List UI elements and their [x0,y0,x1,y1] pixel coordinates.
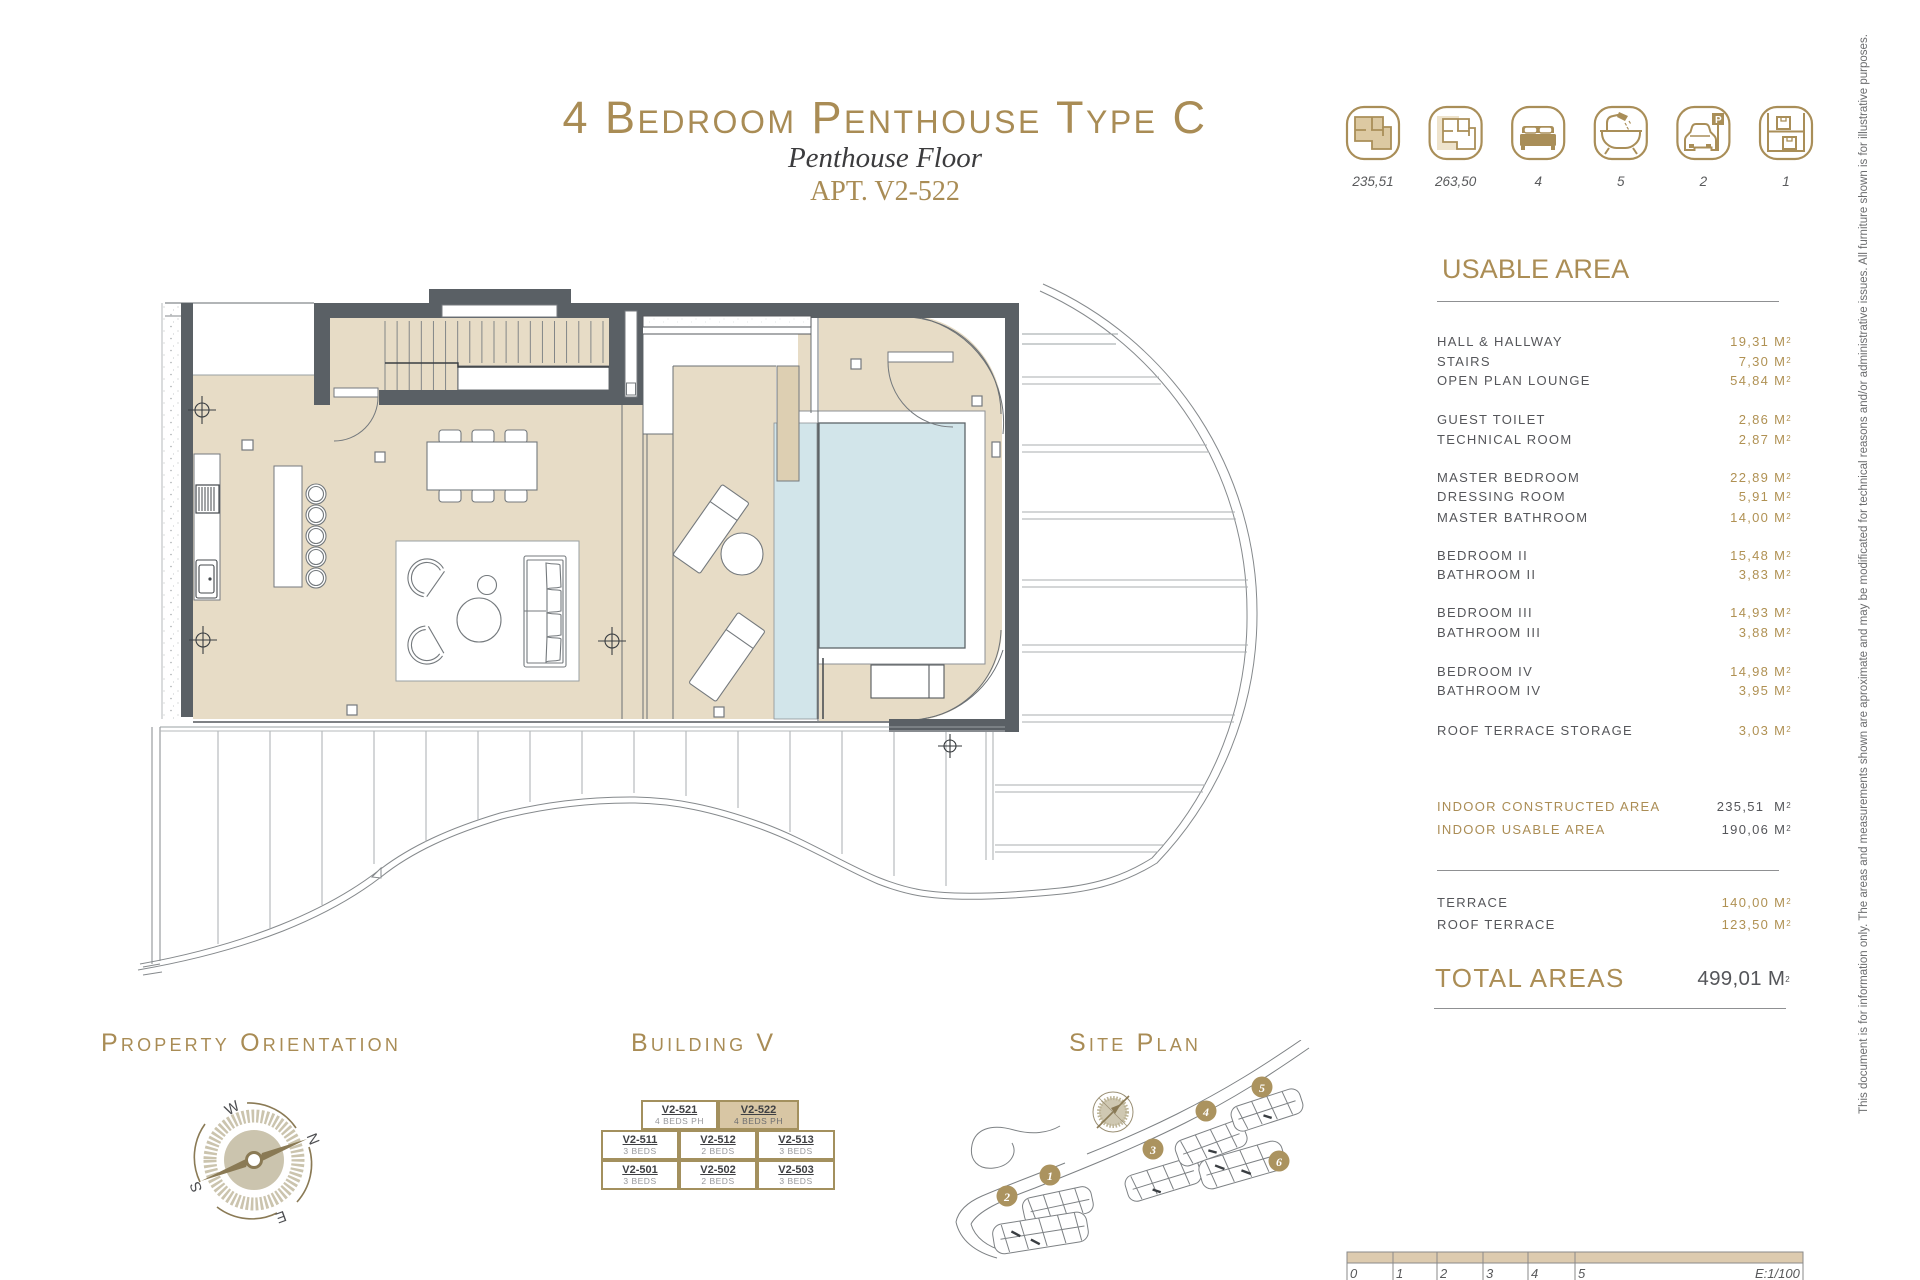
svg-text:0: 0 [1350,1266,1358,1280]
svg-text:S: S [187,1179,206,1194]
svg-text:N: N [303,1131,323,1147]
svg-text:E:1/100: E:1/100 [1755,1266,1801,1280]
svg-text:4: 4 [1202,1105,1209,1119]
svg-text:263,50: 263,50 [1434,174,1477,189]
svg-text:E: E [273,1207,288,1226]
svg-text:3: 3 [1486,1266,1494,1280]
svg-text:1: 1 [1396,1266,1403,1280]
svg-text:1: 1 [1782,174,1790,189]
svg-text:2: 2 [1439,1266,1448,1280]
svg-text:2: 2 [1699,174,1708,189]
svg-text:5: 5 [1259,1081,1265,1095]
svg-text:1: 1 [1047,1169,1053,1183]
svg-text:4: 4 [1531,1266,1538,1280]
svg-text:3: 3 [1149,1143,1156,1157]
svg-text:6: 6 [1276,1155,1282,1169]
svg-text:5: 5 [1578,1266,1586,1280]
svg-text:235,51: 235,51 [1351,174,1393,189]
svg-text:2: 2 [1003,1190,1010,1204]
svg-text:5: 5 [1617,174,1625,189]
svg-text:W: W [222,1097,243,1119]
svg-text:P: P [1715,115,1722,126]
svg-text:4: 4 [1534,174,1542,189]
